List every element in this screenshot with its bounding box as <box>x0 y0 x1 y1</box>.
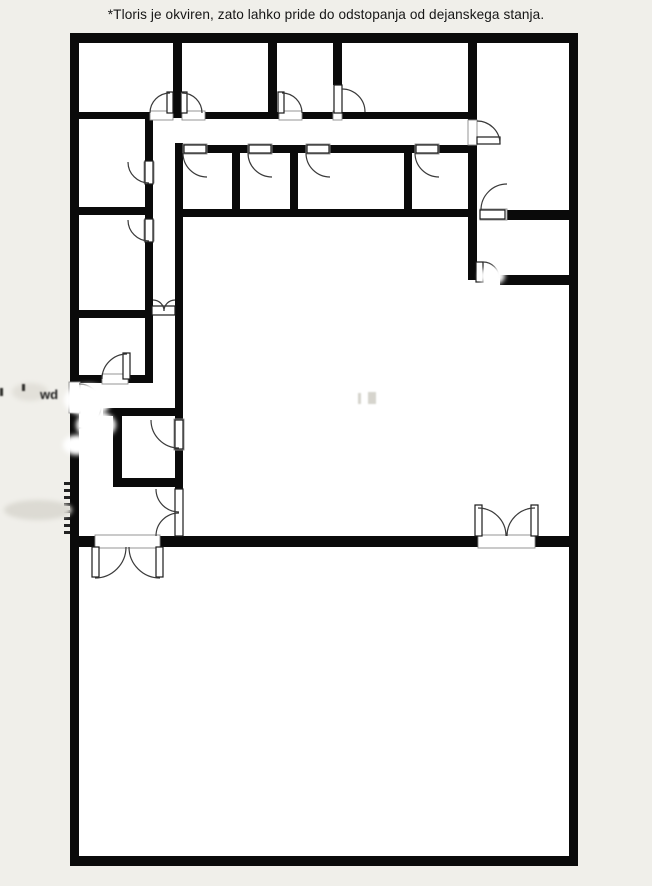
door-leaf <box>92 547 99 577</box>
wall-tick <box>64 531 70 534</box>
wall-segment <box>507 210 569 220</box>
door-opening <box>468 120 477 145</box>
wall-segment <box>272 145 306 153</box>
door-leaf <box>278 92 284 113</box>
wall-tick <box>64 489 70 492</box>
wall-segment <box>70 33 578 43</box>
wall-segment <box>103 408 183 416</box>
wall-segment <box>79 112 150 119</box>
wall-segment <box>302 112 468 119</box>
wall-segment <box>290 153 298 211</box>
wall-segment <box>79 310 153 318</box>
wall-segment <box>333 43 342 85</box>
wall-segment <box>232 153 240 211</box>
door-leaf <box>156 547 163 577</box>
door-leaf <box>249 145 271 153</box>
wall-segment <box>127 375 153 383</box>
wall-tick <box>64 524 70 527</box>
wd-smudge-text: wd <box>39 387 58 402</box>
door-leaf <box>475 505 482 536</box>
door-leaf <box>123 353 130 379</box>
screenshot-root: *Tloris je okviren, zato lahko pride do … <box>0 0 652 886</box>
white-smudge <box>64 384 112 416</box>
white-smudge <box>76 411 116 439</box>
wall-segment <box>500 275 569 285</box>
door-leaf <box>334 85 342 113</box>
dark-mark <box>0 388 3 396</box>
door-leaf <box>145 161 153 184</box>
wall-segment <box>79 375 103 383</box>
wall-segment <box>145 118 153 162</box>
wall-segment <box>535 536 569 547</box>
door-opening <box>95 535 160 548</box>
wall-tick <box>64 496 70 499</box>
dark-mark <box>22 384 25 391</box>
wall-segment <box>160 536 478 547</box>
wall-segment <box>79 207 153 215</box>
wall-segment <box>468 43 477 120</box>
door-leaf <box>175 420 183 449</box>
door-leaf <box>480 210 505 219</box>
white-smudge <box>479 267 505 285</box>
door-leaf <box>167 92 173 113</box>
wall-segment <box>207 145 248 153</box>
wall-segment <box>268 43 277 118</box>
white-smudge <box>63 435 91 455</box>
door-leaf <box>531 505 538 536</box>
door-leaf <box>307 145 329 153</box>
door-opening <box>478 535 535 548</box>
door-leaf <box>145 219 153 242</box>
door-leaf <box>416 145 438 153</box>
wall-segment <box>79 536 95 547</box>
wall-segment <box>175 143 183 420</box>
wall-segment <box>439 145 468 153</box>
wall-segment <box>205 112 279 119</box>
door-leaf <box>181 92 187 113</box>
wall-segment <box>404 153 412 211</box>
wall-segment <box>113 478 183 487</box>
wall-segment <box>330 145 415 153</box>
door-leaf <box>477 137 500 144</box>
wall-segment <box>70 33 79 382</box>
wall-tick <box>64 482 70 485</box>
wall-segment <box>70 413 79 866</box>
wall-segment <box>569 33 578 866</box>
faint-mark <box>368 392 376 404</box>
wall-segment <box>468 145 477 280</box>
door-leaf <box>184 145 206 153</box>
wall-segment <box>70 856 578 866</box>
floor-plan-svg: wd <box>0 0 652 886</box>
wall-segment <box>175 209 468 217</box>
plan-layers: wd <box>0 33 578 866</box>
wall-tick <box>64 517 70 520</box>
faint-mark <box>358 393 361 404</box>
gray-smudge <box>4 500 72 520</box>
